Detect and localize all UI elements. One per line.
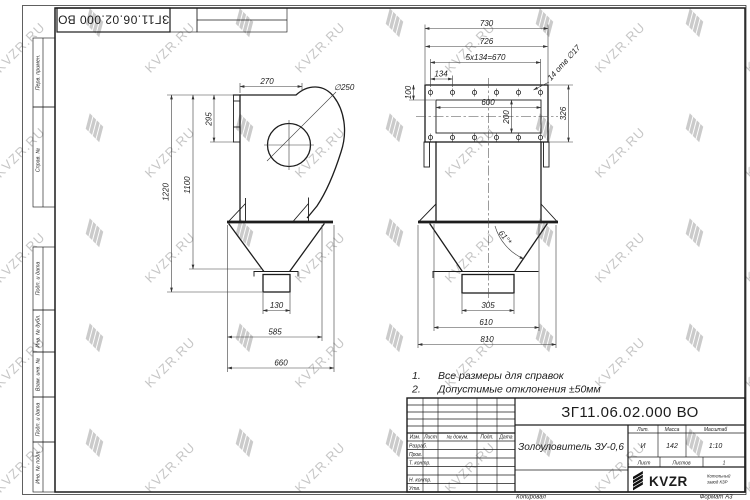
note-2-number: 2. [411,384,421,396]
margin-label-podp-data-2: Подп. и дата [36,403,42,437]
label-massa: Масса [665,427,680,433]
margin-label-inv-podl: Инв. № подл. [36,450,42,483]
margin-label-inv-dubl: Инв. № дубл. [36,314,42,347]
note-1-text: Все размеры для справок [438,370,565,382]
value-masshtab: 1:10 [709,443,723,450]
brand-text: KVZR [649,474,688,489]
dim-134: 134 [434,70,448,79]
dim-1100: 1100 [183,176,192,194]
dim-585: 585 [268,328,282,337]
dim-326: 326 [559,106,568,120]
value-massa: 142 [666,443,678,450]
dim-pitch-670: 5x134=670 [466,53,506,62]
dim-726: 726 [480,37,494,46]
dim-100: 100 [404,85,413,99]
dim-130: 130 [270,301,284,310]
top-designation-text: ЗГ11.06.02.000 ВО [58,13,170,27]
header-podp: Подп. [480,435,493,441]
dim-610: 610 [479,318,493,327]
header-list: Лист [423,435,437,441]
row-utv: Утв. [409,486,420,492]
dim-295: 295 [205,112,214,127]
margin-label-sprav: Справ. № [36,148,42,173]
row-tkontr: Т. контр. [409,461,431,467]
value-listov: 1 [723,461,726,467]
dim-1220: 1220 [162,183,171,201]
titleblock-part-name: Золоуловитель ЗУ-0,6 [518,442,624,453]
drawing-canvas: KVZR.RU ЗГ11.06.02.000 ВО Перв. примен. … [0,0,750,500]
dim-270: 270 [259,77,274,86]
margin-label-vzam-inv: Взам. инв. № [36,358,42,392]
dim-660: 660 [274,359,288,368]
dim-600: 600 [481,98,495,107]
format-label: Формат А3 [700,495,733,500]
dim-200: 200 [502,110,511,125]
dim-810: 810 [480,335,494,344]
header-ndokum: № докум. [446,435,468,441]
brand-subtext-2: завод КЗР [706,480,728,485]
copied-label: Копировал [516,495,546,500]
row-nkontr: Н. контр. [409,478,432,484]
margin-label-podp-data-1: Подп. и дата [36,262,42,296]
label-lit: Лит. [636,427,649,433]
note-2-text: Допустимые отклонения ±50мм [437,384,601,396]
titleblock-designation: ЗГ11.06.02.000 ВО [561,404,699,421]
label-listov: Листов [671,461,691,467]
header-data: Дата [498,435,512,441]
dim-305: 305 [481,301,495,310]
row-razrab: Разраб. [409,444,427,450]
note-1-number: 1. [412,370,421,382]
margin-label-perv-primen: Перв. примен. [36,55,42,91]
label-masshtab: Масштаб [704,427,728,433]
dim-dia250: ∅250 [334,83,355,92]
label-list: Лист [637,461,651,467]
brand-subtext-1: Котельный [707,474,731,479]
dim-730: 730 [480,19,494,28]
drawing-page: KVZR.RU ЗГ11.06.02.000 ВО Перв. примен. … [0,0,750,500]
header-izm: Изм. [410,435,421,441]
row-prov: Пров. [409,452,422,458]
